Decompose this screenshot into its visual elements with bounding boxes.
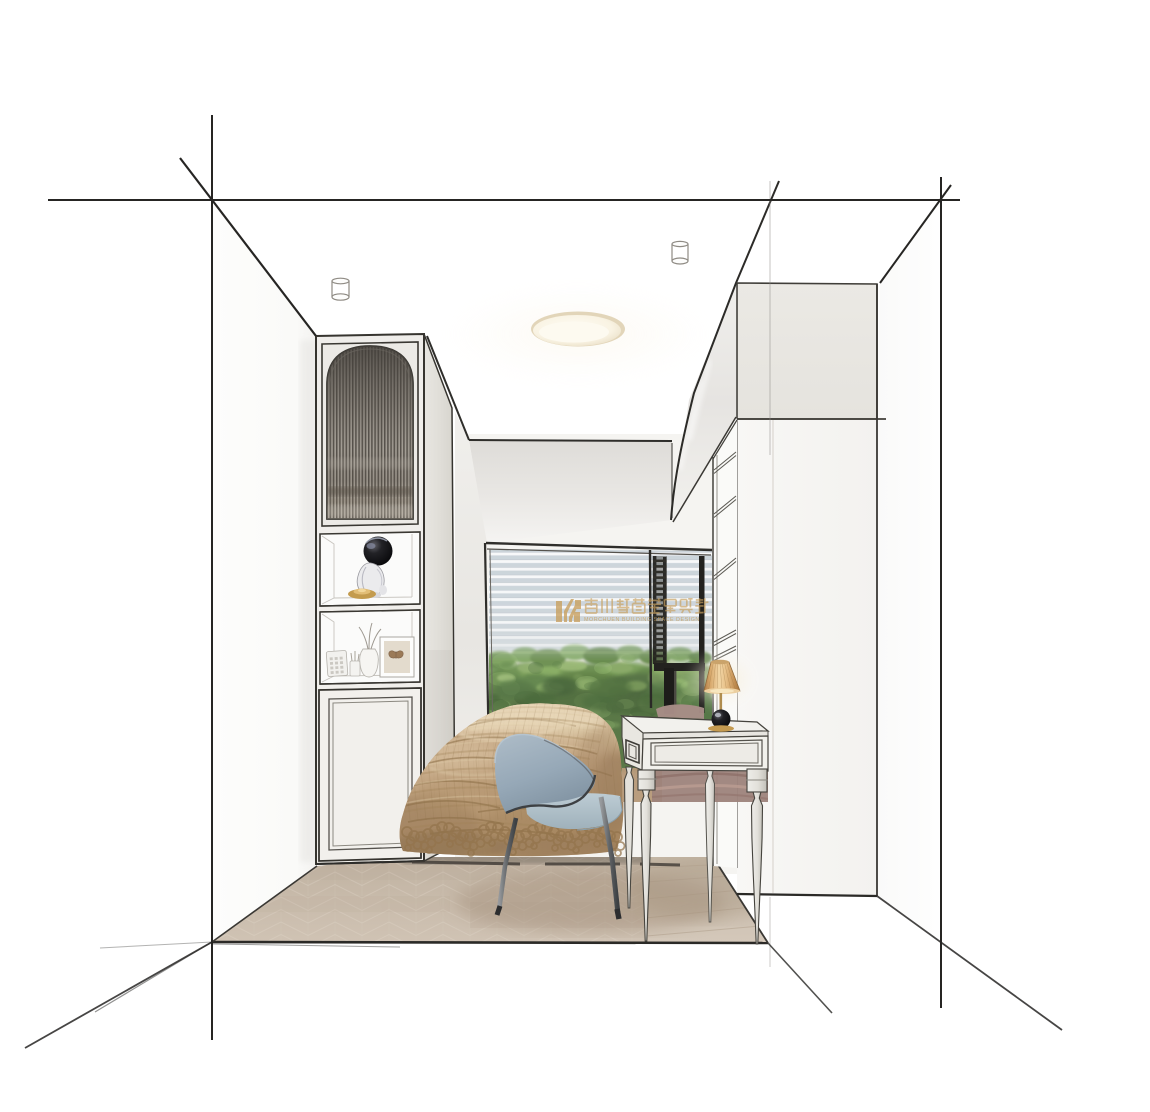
svg-text:MORCHUEN BUILDING SPACE DESIGN: MORCHUEN BUILDING SPACE DESIGN — [584, 617, 700, 623]
